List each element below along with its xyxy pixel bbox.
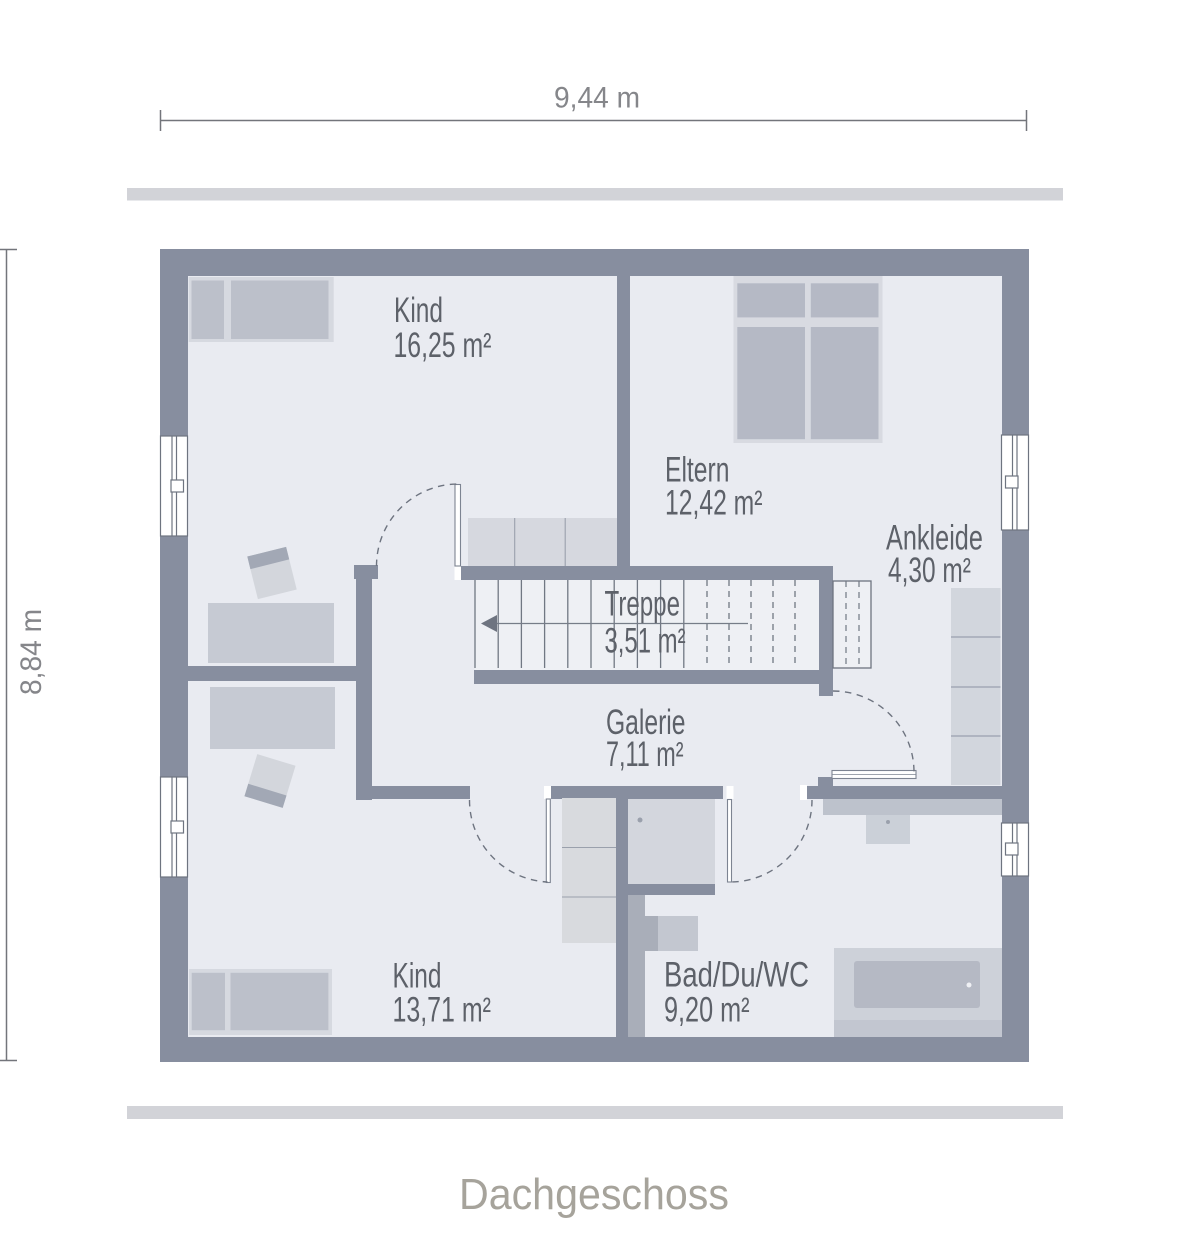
svg-text:8,84 m: 8,84 m xyxy=(15,609,48,695)
svg-text:7,11 m²: 7,11 m² xyxy=(606,735,684,774)
svg-text:Treppe: Treppe xyxy=(605,585,680,623)
svg-text:4,30 m²: 4,30 m² xyxy=(888,552,971,590)
svg-text:16,25 m²: 16,25 m² xyxy=(394,327,492,365)
svg-text:9,20 m²: 9,20 m² xyxy=(664,991,750,1030)
svg-text:Bad/Du/WC: Bad/Du/WC xyxy=(664,955,809,994)
svg-text:9,44 m: 9,44 m xyxy=(554,82,640,115)
svg-text:Kind: Kind xyxy=(394,292,443,330)
svg-text:3,51 m²: 3,51 m² xyxy=(605,622,686,661)
svg-text:Dachgeschoss: Dachgeschoss xyxy=(459,1170,729,1220)
svg-text:12,42 m²: 12,42 m² xyxy=(665,484,762,522)
svg-text:13,71 m²: 13,71 m² xyxy=(393,990,491,1029)
